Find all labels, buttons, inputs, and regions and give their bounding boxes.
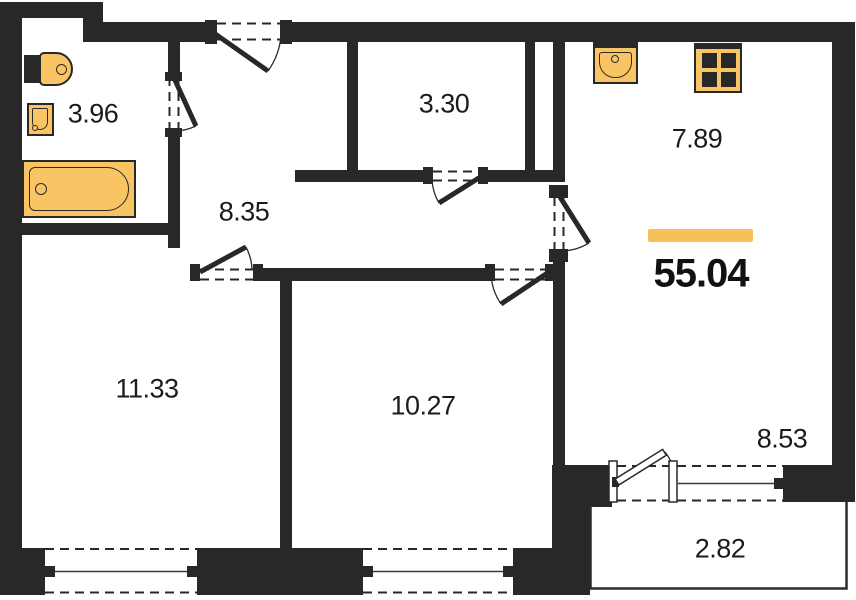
total-area-accent-bar bbox=[648, 229, 753, 242]
door-jamb bbox=[253, 264, 263, 281]
door-jamb bbox=[549, 185, 568, 198]
door-arc-toilet bbox=[432, 180, 439, 203]
room-area-toilet: 3.30 bbox=[419, 89, 470, 120]
door-leaf-bathroom bbox=[174, 78, 196, 126]
basin-drain-dot bbox=[32, 125, 38, 131]
kitchen-sink-dot bbox=[611, 55, 619, 63]
room-area-bathroom: 3.96 bbox=[68, 99, 119, 130]
room-area-hallway: 8.35 bbox=[219, 197, 270, 228]
door-jamb bbox=[190, 264, 200, 281]
balcony-window-end bbox=[774, 478, 785, 489]
burner bbox=[702, 72, 717, 87]
kitchen-sink-icon bbox=[593, 42, 638, 84]
burner bbox=[721, 72, 736, 87]
door-leaf-toilet bbox=[439, 176, 482, 203]
door-leaf-room2 bbox=[501, 272, 549, 304]
room-area-kitchen: 7.89 bbox=[672, 124, 723, 155]
total-area-label: 55.04 bbox=[653, 252, 748, 297]
room-area-room2: 10.27 bbox=[390, 391, 455, 422]
toilet-tank-icon bbox=[24, 55, 40, 83]
window-2-end bbox=[363, 566, 373, 577]
door-arc-bedroom bbox=[246, 247, 252, 270]
door-jamb bbox=[485, 264, 495, 281]
burner bbox=[702, 53, 717, 68]
door-opening-toilet bbox=[433, 172, 478, 181]
room-area-bedroom: 11.33 bbox=[115, 374, 178, 405]
floor-plan: 3.96 8.35 3.30 7.89 11.33 10.27 8.53 2.8… bbox=[0, 0, 856, 600]
door-opening-entry bbox=[217, 24, 280, 40]
bathtub-icon bbox=[22, 160, 136, 218]
door-jamb bbox=[165, 128, 182, 137]
window-2-end bbox=[503, 566, 513, 577]
toilet-bowl-dot bbox=[56, 64, 67, 75]
room-area-balcony: 2.82 bbox=[695, 534, 746, 565]
burner bbox=[721, 53, 736, 68]
door-leaf-bedroom bbox=[200, 247, 246, 272]
toilet-icon bbox=[39, 52, 73, 86]
door-jamb bbox=[280, 20, 292, 44]
stove-icon bbox=[694, 43, 742, 93]
wash-basin-icon bbox=[27, 103, 54, 136]
balcony-door-leaf bbox=[615, 449, 666, 485]
room-area-living: 8.53 bbox=[757, 424, 808, 455]
door-leaf-entry bbox=[211, 31, 268, 71]
bathtub-drain-dot bbox=[35, 183, 47, 195]
window-1-end bbox=[45, 566, 55, 577]
window-1-end bbox=[187, 566, 197, 577]
balcony-door-jamb bbox=[669, 461, 677, 502]
door-opening-bedroom bbox=[200, 270, 253, 280]
